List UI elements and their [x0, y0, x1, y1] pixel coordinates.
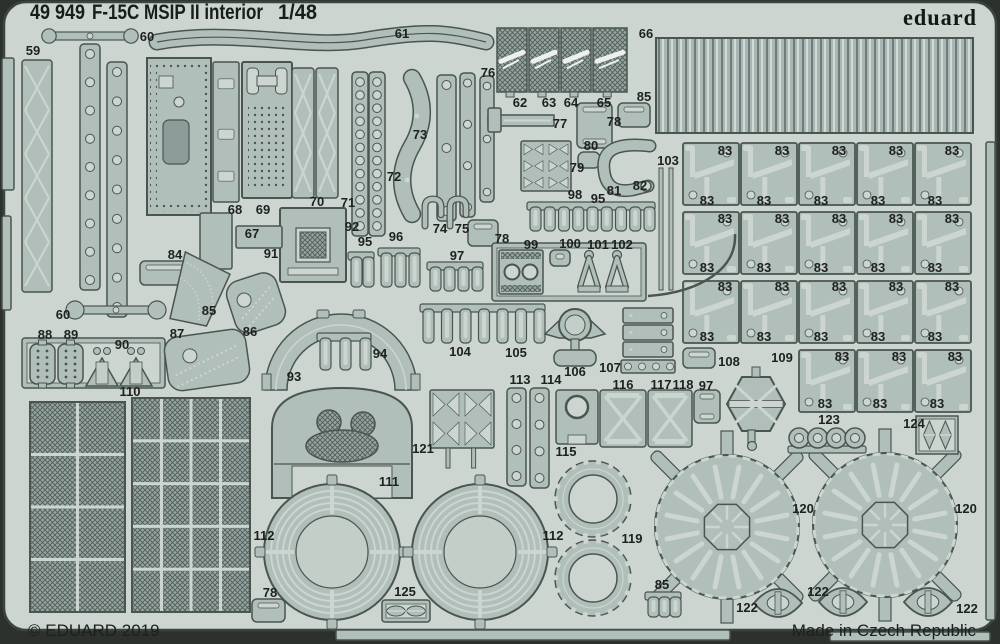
part-number-label: 91: [264, 246, 278, 261]
catalog-number: 49 949: [30, 1, 85, 24]
part-number-label: 78: [607, 114, 621, 129]
part-number-label: 83: [832, 211, 846, 226]
part-85-bracket-top: [618, 103, 650, 127]
part-number-label: 64: [564, 95, 579, 110]
part-number-label: 81: [607, 183, 621, 198]
part-number-label: 83: [871, 193, 885, 208]
part-number-label: 83: [889, 279, 903, 294]
part-number-label: 80: [584, 138, 598, 153]
part-number-label: 83: [718, 211, 732, 226]
part-64-mesh: [561, 28, 591, 97]
part-100-bracket: [550, 250, 570, 266]
part-89-pad: [58, 340, 83, 388]
part-number-label: 83: [945, 211, 959, 226]
part-side-console-plate: [147, 58, 211, 215]
part-number-label: 100: [559, 236, 581, 251]
fret-edge-strip-bottom-a: [336, 630, 730, 640]
fret-edge-strip-right: [986, 142, 995, 620]
part-85-clips: [645, 592, 681, 617]
part-number-label: 79: [570, 160, 584, 175]
part-number-label: 63: [542, 95, 556, 110]
part-number-label: 76: [481, 65, 495, 80]
part-number-label: 95: [591, 191, 605, 206]
part-number-label: 85: [655, 577, 669, 592]
part-70-truss-b: [316, 68, 338, 198]
part-number-label: 78: [495, 231, 509, 246]
part-110-grid-b: [132, 398, 250, 612]
part-number-label: 71: [341, 195, 355, 210]
part-83-cell: [915, 143, 971, 205]
part-number-label: 78: [263, 585, 277, 600]
part-number-label: 117: [651, 377, 672, 392]
part-number-label: 83: [832, 143, 846, 158]
part-number-label: 95: [358, 234, 372, 249]
part-number-label: 122: [736, 600, 758, 615]
part-number-label: 87: [170, 326, 184, 341]
part-115-plate: [556, 390, 598, 444]
part-number-label: 85: [202, 303, 216, 318]
part-71-strip-b: [369, 72, 385, 236]
part-number-label: 83: [832, 279, 846, 294]
part-71-strip-a: [352, 72, 368, 236]
part-number-label: 83: [775, 211, 789, 226]
part-number-label: 83: [835, 349, 849, 364]
part-number-label: 83: [757, 260, 771, 275]
part-number-label: 118: [673, 377, 694, 392]
part-number-label: 83: [930, 396, 944, 411]
part-number-label: 83: [814, 193, 828, 208]
part-92-plate: [280, 208, 346, 282]
part-number-label: 108: [718, 354, 740, 369]
part-number-label: 92: [345, 219, 359, 234]
part-number-label: 83: [945, 279, 959, 294]
part-88-pad: [30, 340, 55, 388]
part-number-label: 83: [892, 349, 906, 364]
part-number-label: 73: [413, 127, 427, 142]
part-number-label: 83: [718, 279, 732, 294]
part-number-label: 102: [611, 237, 633, 252]
part-number-label: 109: [771, 350, 793, 365]
part-number-label: 96: [389, 229, 403, 244]
part-number-label: 66: [639, 26, 653, 41]
part-number-label: 115: [556, 444, 577, 459]
part-number-label: 83: [871, 329, 885, 344]
part-59-rail: [22, 60, 52, 292]
scale-label: 1/48: [278, 1, 317, 24]
part-number-label: 83: [775, 279, 789, 294]
part-110-grid-a: [30, 402, 125, 612]
part-number-label: 60: [56, 307, 70, 322]
part-94-comb: [317, 333, 371, 370]
part-number-label: 68: [228, 202, 242, 217]
part-79-panel: [521, 141, 571, 191]
part-number-label: 122: [807, 584, 829, 599]
part-number-label: 120: [792, 501, 814, 516]
part-number-label: 110: [120, 384, 141, 399]
part-number-label: 111: [379, 474, 399, 489]
pe-fret-photo: 49 949 F-15C MSIP II interior 1/48 eduar…: [0, 0, 1000, 644]
part-number-label: 89: [64, 327, 78, 342]
part-number-label: 61: [395, 26, 409, 41]
part-number-label: 106: [564, 364, 586, 379]
part-number-label: 116: [613, 377, 634, 392]
part-number-label: 83: [928, 329, 942, 344]
part-96-comb: [378, 248, 420, 287]
part-number-label: 83: [700, 193, 714, 208]
part-63-mesh: [529, 28, 559, 97]
part-number-label: 103: [657, 153, 679, 168]
part-114-strip: [530, 388, 549, 488]
part-number-label: 67: [245, 226, 259, 241]
part-number-label: 84: [168, 247, 183, 262]
part-number-label: 82: [633, 178, 647, 193]
part-99-ringbox: [499, 250, 543, 294]
part-number-label: 123: [818, 412, 840, 427]
part-117-118-frame: [648, 390, 692, 447]
part-number-label: 83: [948, 349, 962, 364]
part-number-label: 65: [597, 95, 611, 110]
sheet-title: F-15C MSIP II interior: [92, 1, 263, 24]
part-number-label: 120: [955, 501, 977, 516]
copyright-text: © EDUARD 2019: [28, 621, 160, 640]
part-number-label: 72: [387, 169, 401, 184]
part-number-label: 69: [256, 202, 270, 217]
part-number-label: 97: [699, 378, 713, 393]
brand-logo: eduard: [903, 5, 977, 30]
part-number-label: 83: [928, 260, 942, 275]
part-65-mesh: [593, 28, 627, 97]
part-number-label: 60: [140, 29, 154, 44]
part-number-label: 85: [637, 89, 651, 104]
part-number-label: 114: [541, 372, 563, 387]
part-78-box: [468, 220, 498, 246]
part-67-plate: [200, 213, 232, 269]
part-number-label: 83: [775, 143, 789, 158]
part-number-label: 101: [587, 237, 609, 252]
part-number-label: 83: [718, 143, 732, 158]
part-number-label: 107: [599, 360, 621, 375]
part-number-label: 74: [433, 221, 448, 236]
part-125-tray: [382, 600, 430, 622]
part-number-label: 112: [543, 528, 564, 543]
part-number-label: 83: [757, 193, 771, 208]
part-number-label: 88: [38, 327, 52, 342]
part-97-comb: [427, 262, 483, 291]
part-number-label: 113: [510, 372, 531, 387]
part-number-label: 94: [373, 346, 388, 361]
part-number-label: 124: [903, 416, 925, 431]
part-83-cell: [915, 281, 971, 343]
part-66-panel: [656, 38, 973, 133]
part-number-label: 83: [700, 329, 714, 344]
part-number-label: 77: [553, 116, 567, 131]
part-number-label: 83: [945, 143, 959, 158]
part-number-label: 105: [505, 345, 527, 360]
part-97-bracket: [694, 390, 720, 423]
part-number-label: 90: [115, 337, 129, 352]
part-number-label: 83: [871, 260, 885, 275]
part-number-label: 83: [700, 260, 714, 275]
part-number-label: 83: [757, 329, 771, 344]
part-119-gear-a: [555, 461, 631, 537]
part-83-cell: [915, 212, 971, 274]
part-107-stack: [621, 308, 675, 373]
part-number-label: 75: [455, 221, 469, 236]
part-number-label: 119: [622, 531, 643, 546]
part-number-label: 121: [412, 441, 434, 456]
fret-edge-strip-left-b: [2, 216, 11, 310]
part-60-rail-b: [107, 62, 127, 317]
fret-edge-strip-left-a: [2, 58, 14, 190]
part-number-label: 104: [449, 344, 471, 359]
part-number-label: 83: [889, 211, 903, 226]
part-113-strip: [507, 388, 526, 486]
part-61-strip: [157, 33, 486, 42]
part-number-label: 62: [513, 95, 527, 110]
part-68-strip: [213, 62, 239, 202]
part-98-95-comb: [527, 202, 655, 231]
pe-sheet-canvas: 49 949 F-15C MSIP II interior 1/48 eduar…: [0, 0, 1000, 644]
part-number-label: 86: [243, 324, 257, 339]
part-116-frame: [600, 390, 646, 447]
part-76-strip: [480, 76, 494, 202]
part-number-label: 83: [814, 329, 828, 344]
part-number-label: 97: [450, 248, 464, 263]
part-number-label: 70: [310, 194, 324, 209]
part-number-label: 59: [26, 43, 40, 58]
part-number-label: 83: [873, 396, 887, 411]
made-in-text: Made in Czech Republic: [792, 621, 977, 640]
part-number-label: 98: [568, 187, 582, 202]
part-119-gear-b: [555, 540, 631, 616]
part-62-mesh: [497, 28, 527, 97]
part-number-label: 93: [287, 369, 301, 384]
part-69-plate: [242, 62, 292, 198]
part-number-label: 122: [956, 601, 978, 616]
part-number-label: 99: [524, 237, 538, 252]
part-108-bracket: [683, 348, 715, 368]
part-number-label: 125: [394, 584, 416, 599]
part-number-label: 112: [254, 528, 275, 543]
part-number-label: 83: [889, 143, 903, 158]
part-number-label: 83: [928, 193, 942, 208]
part-number-label: 83: [818, 396, 832, 411]
part-95-comb: [348, 252, 374, 287]
part-70-truss-a: [292, 68, 314, 198]
part-75-strip: [460, 73, 475, 217]
part-number-label: 83: [814, 260, 828, 275]
part-60-rail-a: [80, 44, 100, 290]
part-78-bracket-c: [252, 599, 285, 622]
